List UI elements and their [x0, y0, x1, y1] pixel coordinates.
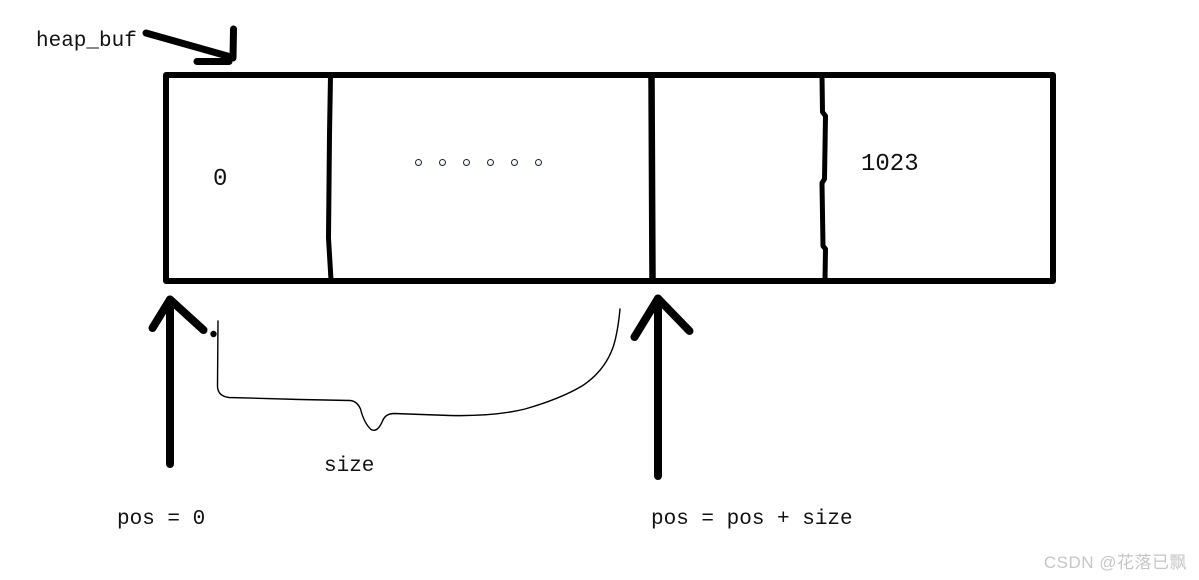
heap-buf-arrowhead-vertical: [233, 29, 234, 58]
hand-drawn-strokes: [0, 0, 1199, 580]
size-label: size: [324, 456, 374, 477]
ellipsis-dot: [511, 159, 518, 166]
buffer-divider-2: [652, 76, 653, 280]
heap-buffer-diagram: heap_buf 0 1023 size pos = 0 pos = pos +…: [0, 0, 1199, 580]
pos-advance-arrowhead-right: [658, 299, 690, 332]
buffer-divider-1: [329, 76, 332, 280]
ellipsis-dot: [487, 159, 494, 166]
heap-buf-label: heap_buf: [36, 31, 137, 52]
ellipsis-dot: [535, 159, 542, 166]
buffer-divider-3: [822, 76, 826, 280]
ellipsis-dot: [415, 159, 422, 166]
buffer-rectangle: [166, 75, 1053, 281]
ink-dot: [210, 331, 216, 337]
buffer-last-index-label: 1023: [861, 153, 919, 177]
ellipsis-dot: [439, 159, 446, 166]
buffer-first-index-label: 0: [213, 168, 227, 192]
ellipsis-dots: [415, 158, 542, 166]
csdn-watermark: CSDN @花落已飘: [1044, 548, 1187, 573]
size-bracket-curve: [218, 309, 621, 430]
pos-advance-label: pos = pos + size: [651, 509, 853, 530]
pos-start-arrowhead-right: [170, 300, 204, 331]
ellipsis-dot: [463, 159, 470, 166]
heap-buf-arrow-shaft: [146, 33, 231, 57]
pos-start-label: pos = 0: [117, 509, 205, 530]
